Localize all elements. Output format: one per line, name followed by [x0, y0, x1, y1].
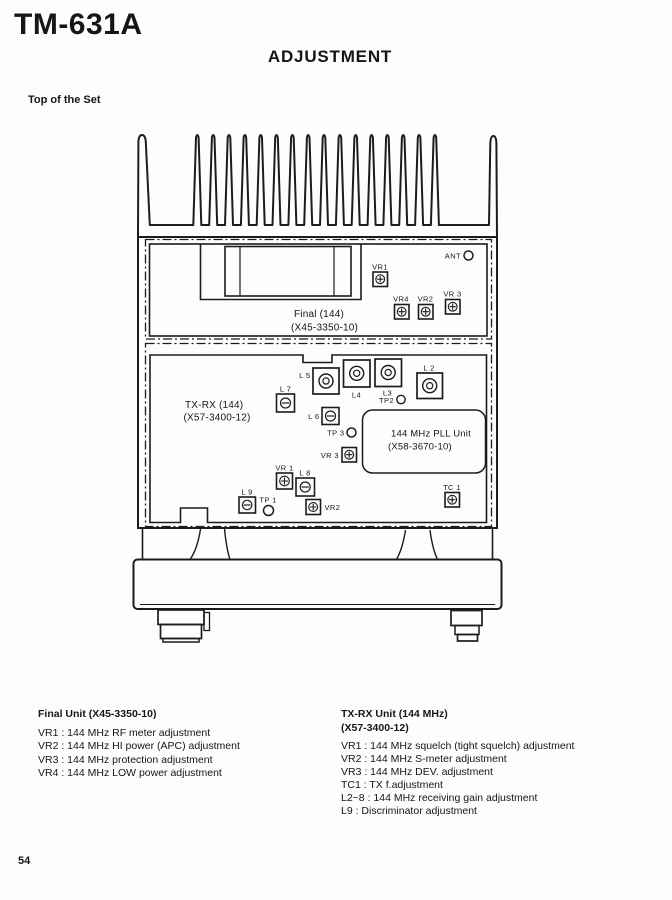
trimmer-vr3-txrx: VR 3	[321, 448, 357, 463]
vr1-final-cross	[377, 276, 383, 282]
vr2-final-label: VR2	[418, 295, 434, 304]
rear-band	[143, 528, 493, 560]
trimmer-vr1-final: VR1	[372, 263, 388, 287]
l3-can	[381, 366, 395, 380]
page-number: 54	[18, 855, 30, 867]
tp2-hole	[397, 395, 405, 403]
l2-slug	[427, 383, 433, 389]
legend-item: L9 : Discriminator adjustment	[341, 805, 574, 818]
legend-item: VR1 : 144 MHz squelch (tight squelch) ad…	[341, 740, 574, 753]
ant-label: ANT	[445, 252, 461, 261]
testpoint-tp1: TP 1	[259, 496, 276, 516]
l8-label: L 8	[299, 469, 310, 478]
l4-can	[350, 366, 364, 380]
trimmer-vr4-final: VR4	[393, 295, 409, 320]
l6-label: L 6	[308, 412, 319, 421]
legend-item: VR1 : 144 MHz RF meter adjustment	[38, 727, 240, 741]
vr3-txrx-cross	[346, 452, 352, 458]
coil-l5: L 5	[299, 368, 339, 394]
testpoint-tp2: TP2	[379, 395, 405, 405]
vr3-txrx-label: VR 3	[321, 451, 339, 460]
l7-label: L 7	[280, 385, 291, 394]
legend-item: L2~8 : 144 MHz receiving gain adjustment	[341, 792, 574, 805]
trimmer-tc1: TC 1	[443, 483, 461, 507]
txrx-unit-legend: TX-RX Unit (144 MHz) (X57-3400-12) VR1 :…	[341, 708, 574, 817]
manual-page: TM-631A ADJUSTMENT Top of the Set Final …	[0, 0, 672, 900]
vr1-txrx-label: VR 1	[275, 464, 293, 473]
legend-item: VR2 : 144 MHz S-meter adjustment	[341, 753, 574, 766]
pll-unit-name: 144 MHz PLL Unit	[391, 429, 471, 440]
l2-body	[417, 373, 443, 399]
l4-label: L4	[352, 391, 361, 400]
pll-unit: 144 MHz PLL Unit (X58-3670-10)	[363, 410, 486, 473]
coil-l4: L4	[344, 360, 371, 400]
final-unit-legend: Final Unit (X45-3350-10) VR1 : 144 MHz R…	[38, 708, 240, 781]
ant-hole	[464, 251, 473, 260]
l2-label: L 2	[423, 364, 434, 373]
l2-can	[423, 379, 437, 393]
testpoint-tp3: TP 3	[327, 428, 356, 438]
vr1-final-label: VR1	[372, 263, 388, 272]
vr4-final-label: VR4	[393, 295, 409, 304]
final-board: Final (144) (X45-3350-10) ANT VR1 VR4	[146, 240, 492, 340]
vr2-txrx-label: VR2	[325, 503, 341, 512]
txrx-board-code: (X57-3400-12)	[184, 413, 251, 424]
legend-item: TC1 : TX f.adjustment	[341, 779, 574, 792]
txrx-board: TX-RX (144) (X57-3400-12) 144 MHz PLL Un…	[146, 344, 492, 527]
legend-item: VR3 : 144 MHz DEV. adjustment	[341, 766, 574, 779]
tp3-label: TP 3	[327, 429, 344, 438]
vr3-final-cross	[450, 304, 456, 310]
coil-l2: L 2	[417, 364, 443, 399]
legend-item: VR3 : 144 MHz protection adjustment	[38, 754, 240, 768]
txrx-unit-legend-code: (X57-3400-12)	[341, 722, 574, 736]
mount-tab-left	[190, 529, 230, 560]
pll-unit-code: (X58-3670-10)	[388, 442, 452, 453]
foot-left	[158, 610, 210, 642]
coil-l9: L 9	[239, 488, 256, 514]
vr2-txrx-cross	[310, 504, 316, 510]
coil-l8: L 8	[296, 469, 315, 497]
vr1-txrx-cross	[281, 478, 288, 485]
l5-slug	[323, 378, 329, 384]
trimmer-vr2-final: VR2	[418, 295, 434, 320]
l3-body	[375, 359, 402, 387]
pa-module-outline	[225, 247, 351, 297]
final-unit-legend-title: Final Unit (X45-3350-10)	[38, 708, 240, 722]
tc1-label: TC 1	[443, 483, 461, 492]
final-board-name: Final (144)	[294, 309, 344, 320]
tp2-label: TP2	[379, 396, 394, 405]
mount-tab-right	[397, 530, 438, 560]
legend-item: VR4 : 144 MHz LOW power adjustment	[38, 767, 240, 781]
tc1-cross	[449, 497, 455, 503]
set-bottom	[134, 528, 502, 642]
l4-slug	[354, 370, 360, 376]
coil-l3: L3	[375, 359, 402, 398]
l5-body	[313, 368, 339, 394]
coil-l7: L 7	[277, 385, 295, 413]
heatsink-fins	[138, 135, 497, 237]
vr3-final-label: VR 3	[443, 290, 461, 299]
trimmer-vr2-txrx: VR2	[306, 500, 340, 515]
front-panel	[134, 560, 502, 610]
tp3-hole	[347, 428, 356, 437]
antenna-jack: ANT	[445, 251, 473, 261]
foot-right	[451, 611, 482, 642]
coil-l6: L 6	[308, 408, 339, 425]
l3-slug	[385, 369, 391, 375]
trimmer-vr1-txrx: VR 1	[275, 464, 293, 490]
l5-can	[319, 374, 333, 388]
tp1-hole	[264, 506, 274, 516]
l9-label: L 9	[241, 488, 252, 497]
txrx-unit-legend-title: TX-RX Unit (144 MHz)	[341, 708, 574, 722]
pa-module-flanges	[240, 247, 334, 297]
l4-body	[344, 360, 371, 387]
txrx-board-name: TX-RX (144)	[185, 400, 243, 411]
vr2-final-cross	[423, 309, 429, 315]
vr4-final-cross	[399, 309, 405, 315]
legend-item: VR2 : 144 MHz HI power (APC) adjustment	[38, 740, 240, 754]
final-board-code: (X45-3350-10)	[291, 323, 358, 334]
l5-label: L 5	[299, 371, 310, 380]
tp1-label: TP 1	[259, 496, 276, 505]
trimmer-vr3-final: VR 3	[443, 290, 461, 315]
